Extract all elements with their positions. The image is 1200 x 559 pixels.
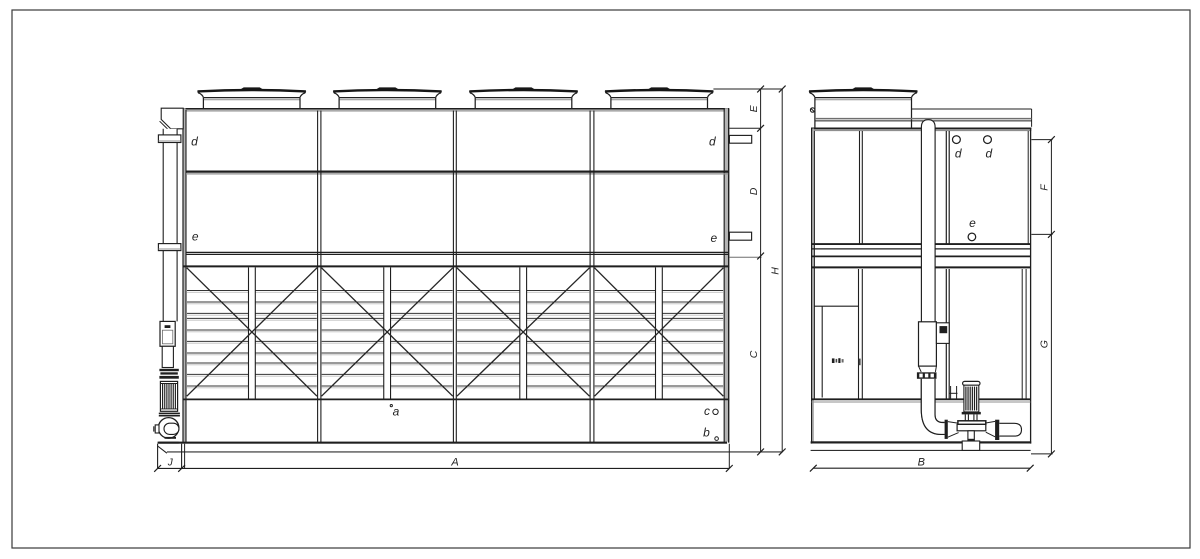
svg-text:a: a (393, 404, 400, 418)
svg-text:C: C (748, 350, 760, 358)
svg-text:e: e (710, 231, 717, 245)
svg-text:e: e (192, 230, 199, 244)
svg-text:B: B (918, 456, 925, 468)
svg-text:J: J (167, 458, 174, 469)
svg-text:d: d (986, 146, 993, 160)
svg-text:H: H (770, 267, 782, 275)
svg-text:c: c (704, 404, 710, 418)
svg-text:b: b (703, 426, 710, 440)
svg-text:E: E (748, 104, 760, 112)
svg-text:G: G (1039, 340, 1051, 348)
svg-text:d: d (955, 146, 962, 160)
svg-text:d: d (709, 134, 716, 148)
svg-text:A: A (450, 456, 458, 468)
svg-text:d: d (191, 134, 198, 148)
svg-text:F: F (1039, 184, 1051, 191)
svg-text:D: D (748, 187, 760, 195)
svg-text:e: e (969, 216, 976, 230)
